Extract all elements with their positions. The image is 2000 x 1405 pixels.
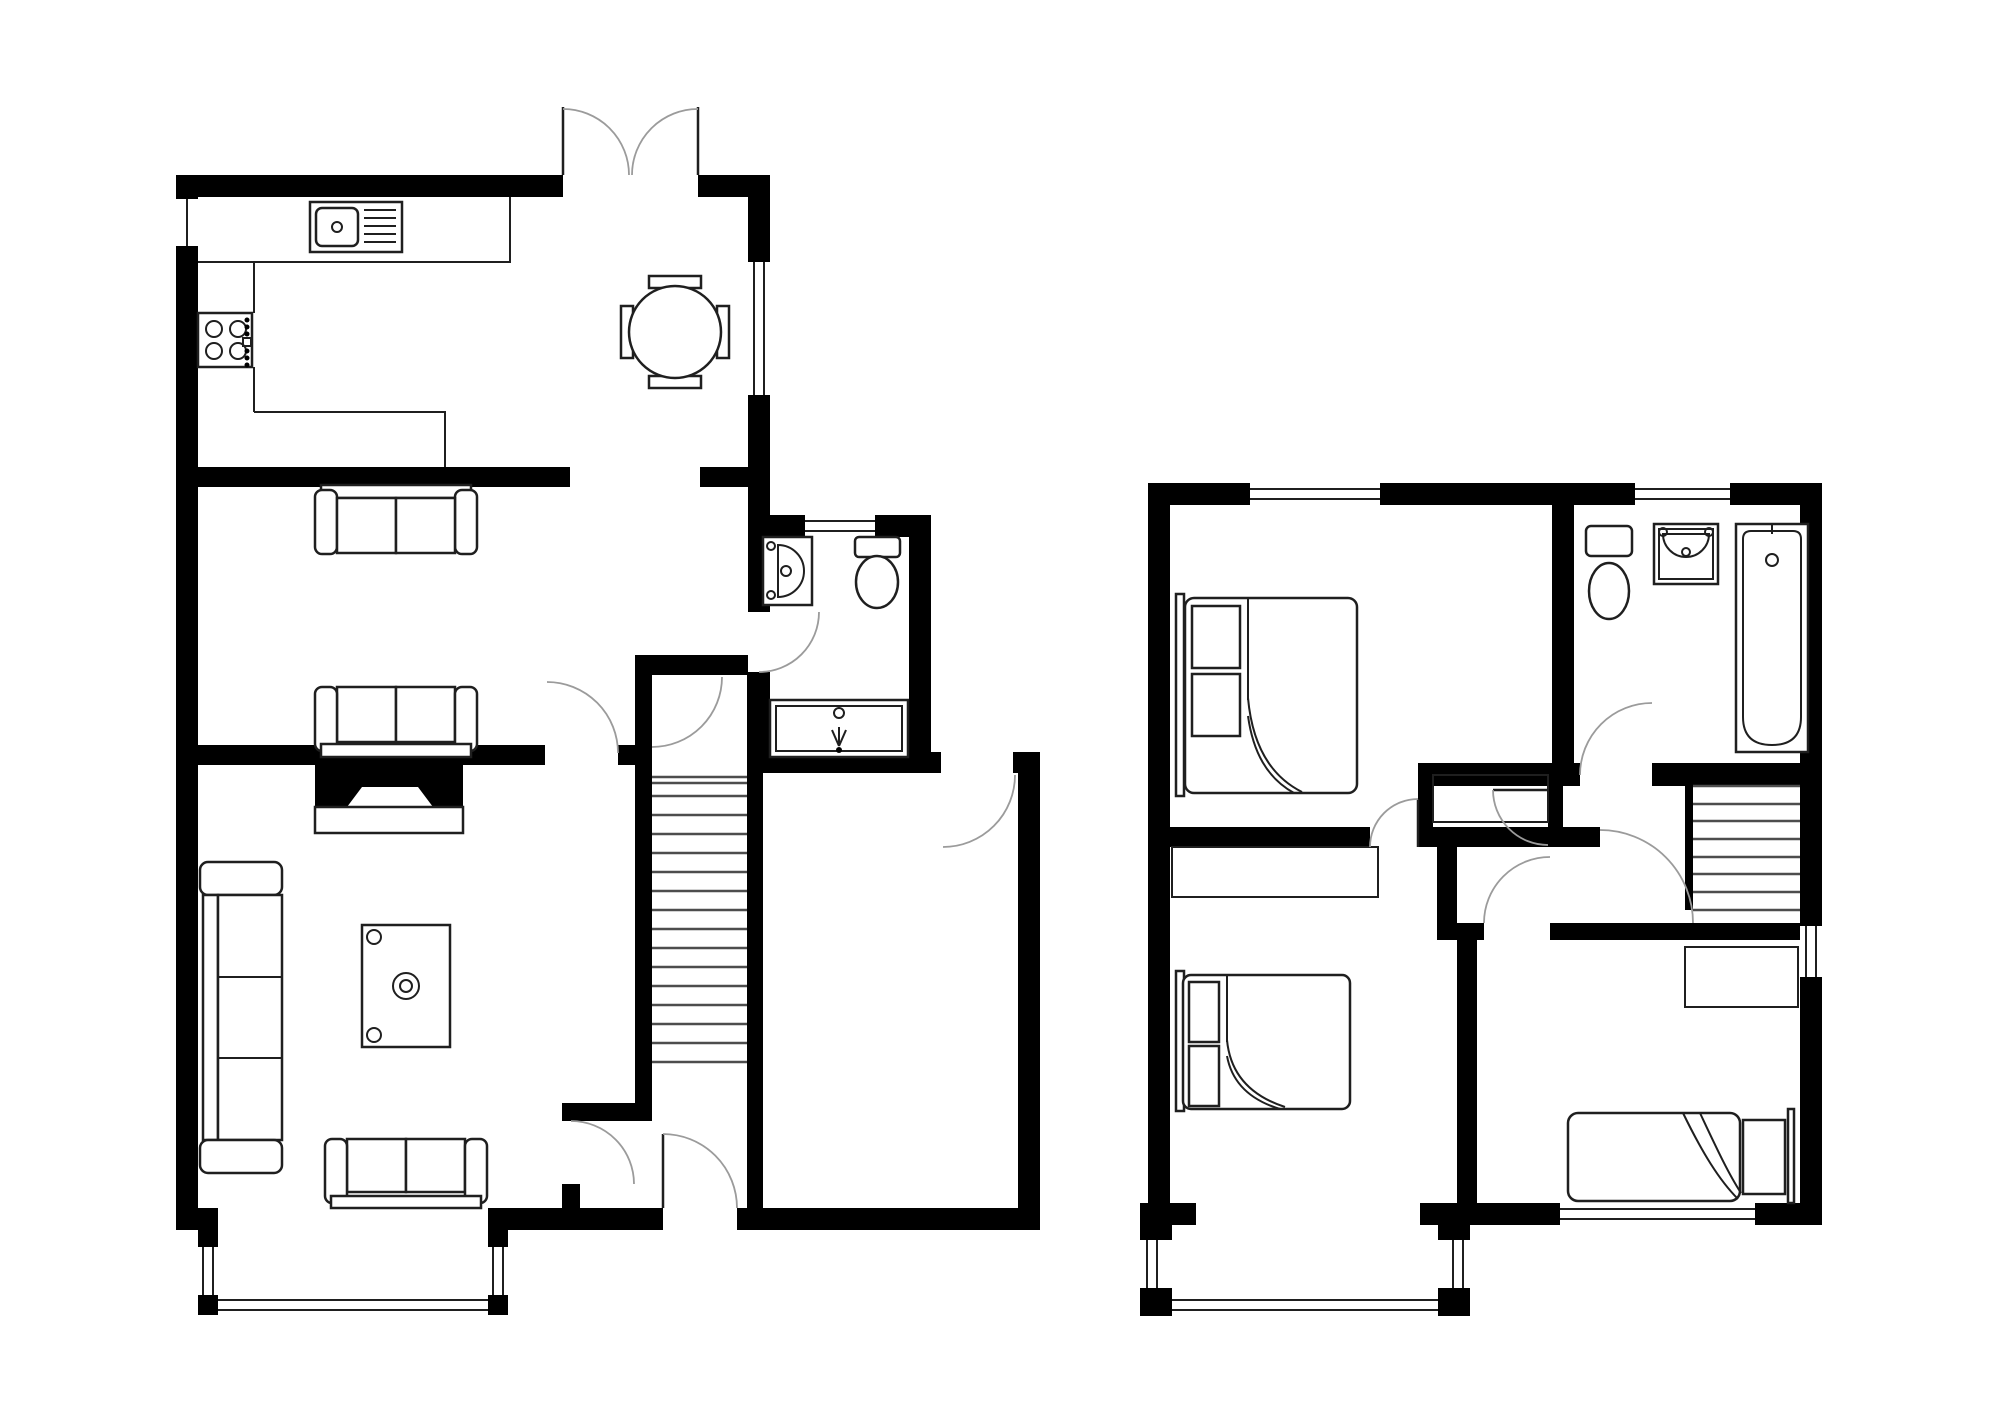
front-door xyxy=(663,1134,737,1208)
dining-side-window xyxy=(748,262,770,395)
bathroom-door-arc xyxy=(1580,703,1652,775)
sitting-room-door-arc xyxy=(547,682,618,753)
sofa-two-seat-bottom xyxy=(325,1139,487,1208)
coffee-table xyxy=(362,925,450,1047)
ground-floor-walls xyxy=(176,175,1040,1315)
sofa-two-seat-middle xyxy=(315,687,477,757)
corner-sofa xyxy=(200,862,282,1173)
wc-toilet xyxy=(855,537,900,608)
sofa-two-seat-top xyxy=(315,485,477,554)
living-room-door-arc xyxy=(571,1121,634,1184)
first-floor-plan xyxy=(1140,483,1822,1316)
bedroom1-door xyxy=(1370,799,1418,847)
wc-door-arc xyxy=(759,612,819,672)
floor-plan-canvas xyxy=(0,0,2000,1405)
kitchen-sink xyxy=(310,202,402,252)
bay-window xyxy=(198,1247,508,1315)
shower-cubicle xyxy=(770,700,908,757)
ground-floor-plan xyxy=(176,107,1040,1315)
kitchen-small-window xyxy=(176,199,198,246)
french-doors xyxy=(563,107,698,175)
bedroom1-window xyxy=(1250,483,1380,505)
staircase-up xyxy=(652,777,747,1062)
bathroom-basin xyxy=(1654,524,1718,584)
bedroom2-bay-window xyxy=(1142,1240,1468,1315)
landing-side-window xyxy=(1800,926,1822,977)
bedroom2-wardrobe xyxy=(1172,847,1378,897)
wc-window xyxy=(805,515,875,537)
floor-plan-drawing xyxy=(0,0,2000,1405)
bedroom3-door-arc xyxy=(1484,857,1550,923)
fireplace xyxy=(315,765,463,833)
first-floor-doors xyxy=(1370,703,1693,923)
store-room-door-arc xyxy=(943,775,1015,847)
landing-door-arc xyxy=(1600,830,1693,923)
hob xyxy=(198,313,252,368)
bathroom-toilet xyxy=(1586,526,1632,619)
bedroom3-single-bed xyxy=(1568,1109,1794,1203)
dining-table xyxy=(621,276,729,388)
staircase-down xyxy=(1693,786,1800,910)
bathroom-window xyxy=(1635,483,1730,505)
bath xyxy=(1736,524,1808,752)
bedroom1-double-bed xyxy=(1176,594,1357,796)
bedroom3-desk xyxy=(1685,947,1798,1007)
wc-basin xyxy=(763,537,812,605)
bedroom2-double-bed xyxy=(1176,971,1350,1111)
inner-hall-door-arc xyxy=(652,677,722,747)
bedroom3-window xyxy=(1560,1203,1755,1225)
